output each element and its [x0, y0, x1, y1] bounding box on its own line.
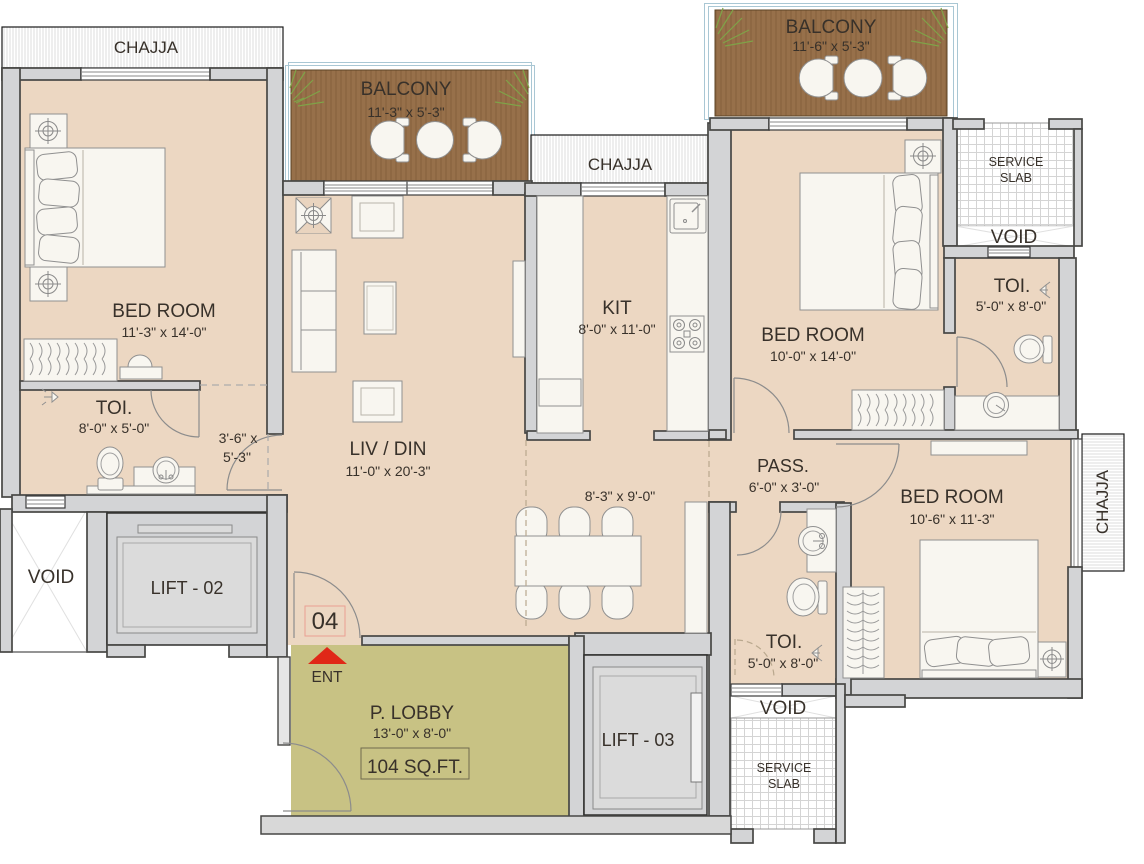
svg-text:TOI.: TOI. — [766, 632, 803, 653]
svg-text:SERVICE: SERVICE — [757, 761, 812, 775]
svg-text:SLAB: SLAB — [768, 777, 800, 791]
svg-text:8'-3" x 9'-0": 8'-3" x 9'-0" — [585, 488, 656, 504]
svg-text:5'-3": 5'-3" — [223, 449, 251, 465]
svg-text:11'-6" x 5'-3": 11'-6" x 5'-3" — [792, 38, 869, 54]
svg-text:BED ROOM: BED ROOM — [112, 301, 215, 322]
svg-text:ENT: ENT — [312, 669, 344, 686]
svg-text:SLAB: SLAB — [1000, 171, 1032, 185]
svg-text:04: 04 — [312, 608, 339, 635]
svg-text:8'-0" x 11'-0": 8'-0" x 11'-0" — [578, 321, 655, 337]
svg-text:LIV / DIN: LIV / DIN — [349, 439, 426, 460]
svg-text:CHAJJA: CHAJJA — [1093, 469, 1112, 534]
svg-text:BED ROOM: BED ROOM — [761, 325, 864, 346]
svg-text:CHAJJA: CHAJJA — [588, 155, 653, 174]
svg-text:BALCONY: BALCONY — [786, 17, 877, 38]
svg-text:10'-0" x 14'-0": 10'-0" x 14'-0" — [770, 348, 856, 364]
svg-text:BED ROOM: BED ROOM — [900, 487, 1003, 508]
svg-text:13'-0" x 8'-0": 13'-0" x 8'-0" — [373, 725, 451, 741]
svg-text:8'-0" x 5'-0": 8'-0" x 5'-0" — [79, 420, 150, 436]
svg-text:KIT: KIT — [602, 298, 632, 319]
svg-text:VOID: VOID — [28, 567, 74, 588]
svg-text:TOI.: TOI. — [96, 398, 133, 419]
svg-text:BALCONY: BALCONY — [361, 79, 452, 100]
svg-text:6'-0" x 3'-0": 6'-0" x 3'-0" — [749, 479, 820, 495]
svg-text:P. LOBBY: P. LOBBY — [370, 703, 454, 724]
svg-text:104 SQ.FT.: 104 SQ.FT. — [367, 757, 463, 778]
svg-text:5'-0" x 8'-0": 5'-0" x 8'-0" — [976, 298, 1047, 314]
svg-text:VOID: VOID — [991, 227, 1037, 248]
svg-text:3'-6" x: 3'-6" x — [219, 430, 258, 446]
svg-text:5'-0" x 8'-0": 5'-0" x 8'-0" — [748, 655, 819, 671]
svg-text:VOID: VOID — [760, 698, 806, 719]
svg-text:11'-0" x 20'-3": 11'-0" x 20'-3" — [345, 463, 430, 479]
svg-text:TOI.: TOI. — [994, 276, 1031, 297]
svg-text:SERVICE: SERVICE — [989, 155, 1044, 169]
svg-text:10'-6" x 11'-3": 10'-6" x 11'-3" — [909, 511, 994, 527]
svg-text:11'-3" x 14'-0": 11'-3" x 14'-0" — [121, 324, 206, 340]
svg-text:PASS.: PASS. — [757, 456, 809, 476]
svg-text:LIFT - 02: LIFT - 02 — [151, 578, 224, 598]
svg-text:CHAJJA: CHAJJA — [114, 38, 179, 57]
svg-text:LIFT - 03: LIFT - 03 — [602, 730, 675, 750]
